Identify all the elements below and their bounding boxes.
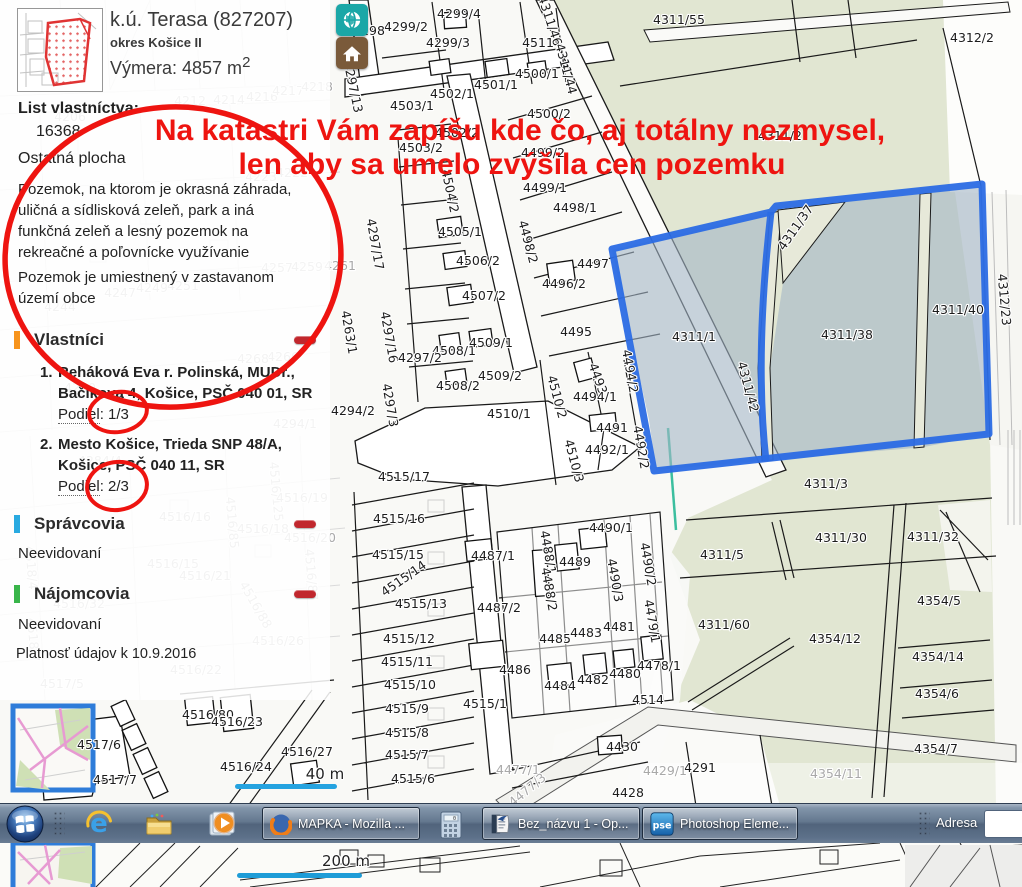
internet-explorer-button[interactable]: e [84,809,114,839]
media-player-icon [208,809,238,839]
tenants-empty: Neevidovaní [18,616,101,633]
taskbar-grip[interactable] [918,811,930,837]
parcel-label: 4489 [559,554,591,569]
folder-icon [144,809,174,839]
parcel-label: 4429/1 [643,763,687,778]
parcel-label: 4487/2 [477,600,521,615]
parcel-label: 4311/40 [932,302,984,317]
owner-name: Mesto Košice, Trieda SNP 48/A, [58,434,320,455]
managers-section-header: Správcovia [0,514,330,536]
taskbar-grip[interactable] [53,811,65,837]
owner-address: Bačíkova 4, Košice, PSČ 040 01, SR [58,383,320,404]
parcel-label: 4299/3 [426,35,470,50]
parcel-location-note: Pozemok je umiestnený v zastavanom území… [18,267,310,309]
parcel-label: 4517/7 [93,772,137,787]
parcel-label: 4506/2 [456,253,500,268]
calculator-icon: 0 [437,811,465,839]
parcel-label: 4430 [606,739,638,754]
parcel-label: 4515/8 [385,725,429,740]
taskbar-window-openoffice[interactable]: Bez_názvu 1 - Op... [482,807,640,840]
parcel-label: 4498/1 [553,200,597,215]
parcel-label: 4515/16 [373,511,425,526]
parcel-label: 4516/23 [211,714,263,729]
parcel-label: 4500/2 [527,106,571,121]
parcel-label: 4503/1 [390,98,434,113]
parcel-label: 4478/1 [637,658,681,673]
address-band-label: Adresa [936,815,977,830]
owner-share: Podiel: 1/3 [58,404,320,425]
home-icon [340,41,364,65]
taskbar-window-photoshop[interactable]: pse Photoshop Eleme... [642,807,798,840]
tenants-accent-bar [14,585,20,603]
parcel-label: 4354/7 [914,741,958,756]
owner-share: Podiel: 2/3 [58,476,320,497]
parcel-label: 4354/12 [809,631,861,646]
parcel-label: 4514 [632,692,664,707]
internet-explorer-icon: e [84,809,114,839]
parcel-label: 4311/30 [815,530,867,545]
parcel-label: 4511 [522,35,554,50]
parcel-label: 4502/2 [435,125,479,140]
parcel-label: 4354/5 [917,593,961,608]
parcel-label: 4354/6 [915,686,959,701]
start-button[interactable] [6,805,44,843]
home-button[interactable] [336,37,368,69]
managers-accent-bar [14,515,20,533]
overview-map-2[interactable] [13,843,93,887]
parcel-label: 4516/24 [220,759,272,774]
collapse-tenants-button[interactable] [294,590,316,598]
parcel-label: 4515/17 [378,469,430,484]
parcel-label: 4510/1 [487,406,531,421]
pse-icon-text: pse [653,820,672,831]
parcel-label: 4515/7 [385,747,429,762]
window-title: Bez_názvu 1 - Op... [518,817,628,831]
parcel-label: 4291 [684,760,716,775]
data-validity: Platnosť údajov k 10.9.2016 [16,646,196,662]
parcel-label: 4482 [577,672,609,687]
tenants-title: Nájomcovia [34,584,129,604]
openoffice-icon [490,812,512,836]
globe-icon [340,8,364,32]
parcel-header: k.ú. Terasa (827207) okres Košice II Vým… [110,8,330,79]
managers-title: Správcovia [34,514,125,534]
parcel-label: 4502/1 [430,86,474,101]
window-title: MAPKA - Mozilla ... [298,817,405,831]
collapse-managers-button[interactable] [294,520,316,528]
parcel-label: 4354/14 [912,649,964,664]
parcel-label: 4497 [577,256,609,271]
parcel-label: 4499/1 [523,180,567,195]
calculator-button[interactable]: 0 [436,810,466,840]
parcel-label: 4509/2 [478,368,522,383]
cadastral-unit-title: k.ú. Terasa (827207) [110,8,330,32]
owner-item: 2. Mesto Košice, Trieda SNP 48/A, Košice… [40,434,320,497]
parcel-label: 4311/2 [758,128,802,143]
parcel-label: 4515/6 [391,771,435,786]
parcel-label: 4354/11 [810,766,862,781]
owners-title: Vlastníci [34,330,104,350]
lv-label: List vlastníctva: [18,100,139,118]
parcel-label: 4507/2 [462,288,506,303]
plot-type: Ostatná plocha [18,150,126,168]
parcel-label: 4297/2 [398,350,442,365]
bottom-map-strip [0,843,1022,887]
parcel-label: 4299/2 [384,19,428,34]
address-input[interactable] [984,810,1022,838]
owners-accent-bar [14,331,20,349]
owner-number: 1. [40,362,53,383]
photoshop-elements-icon: pse [650,812,674,836]
parcel-label: 4311/60 [698,617,750,632]
parcel-label: 4492/1 [585,442,629,457]
parcel-label: 4491 [596,420,628,435]
parcel-label: 4486 [499,662,531,677]
parcel-label: 4515/1 [463,696,507,711]
app-window: 4299/44299/34299/242984297/134311/464511… [0,0,1022,887]
windows-taskbar: e [0,803,1022,843]
info-panel: k.ú. Terasa (827207) okres Košice II Vým… [0,0,330,700]
media-player-button[interactable] [208,809,238,839]
parcel-label: 4312/2 [950,30,994,45]
parcel-label: 4508/2 [436,378,480,393]
svg-text:0: 0 [453,816,456,822]
parcel-label: 4515/9 [385,701,429,716]
parcel-description: Pozemok, na ktorom je okrasná záhrada, u… [18,179,310,263]
parcel-label: 4311/38 [821,327,873,342]
firefox-icon [270,813,292,835]
parcel-label: 4499/2 [521,145,565,160]
owner-address: Košice, PSČ 040 11, SR [58,455,320,476]
owners-section-header: Vlastníci [0,330,330,352]
owner-item: 1. Reháková Eva r. Polinská, MUDr., Bačí… [40,362,320,425]
parcel-label: 4515/13 [395,596,447,611]
district-label: okres Košice II [110,35,330,50]
parcel-label: 4495 [560,324,592,339]
parcel-label: 4509/1 [469,335,513,350]
parcel-label: 4517/6 [77,737,121,752]
parcel-label: 4294/2 [331,403,375,418]
parcel-label: 4490/1 [589,520,633,535]
window-title: Photoshop Eleme... [680,817,789,831]
parcel-label: 4299/4 [437,6,481,21]
parcel-label: 4496/2 [542,276,586,291]
parcel-label: 4311/1 [672,329,716,344]
parcel-label: 4500/1 [515,66,559,81]
lv-number: 16368 [36,123,81,141]
parcel-label: 40 m [306,765,344,783]
parcel-label: 4516/27 [281,744,333,759]
parcel-label: 4484 [544,678,576,693]
parcel-label: 4481 [603,619,635,634]
parcel-label: 4428 [612,785,644,800]
owner-number: 2. [40,434,53,455]
parcel-label: 4515/12 [383,631,435,646]
collapse-owners-button[interactable] [294,336,316,344]
parcel-label: 4505/1 [438,224,482,239]
managers-empty: Neevidovaní [18,545,101,562]
windows-logo-icon [6,805,44,843]
area-label: Výmera: 4857 m2 [110,54,330,79]
parcel-label: 4311/55 [653,12,705,27]
parcel-shape-outline [46,19,90,85]
tenants-section-header: Nájomcovia [0,584,330,606]
parcel-preview-thumbnail [17,8,103,92]
parcel-label: 4311/3 [804,476,848,491]
parcel-label: 4311/5 [700,547,744,562]
owner-name: Reháková Eva r. Polinská, MUDr., [58,362,320,383]
parcel-label: 4515/11 [381,654,433,669]
parcel-label: 4501/1 [474,77,518,92]
parcel-label: 200 m [322,852,370,870]
file-explorer-button[interactable] [144,809,174,839]
parcel-label: 4311/32 [907,529,959,544]
parcel-label: 4515/10 [384,677,436,692]
taskbar-window-firefox[interactable]: MAPKA - Mozilla ... [262,807,420,840]
parcel-label: 4483 [570,625,602,640]
parcel-label: 4485 [539,631,571,646]
parcel-label: 4487/1 [471,548,515,563]
parcel-label: 4494/1 [573,389,617,404]
parcel-label: 4503/2 [399,140,443,155]
globe-button[interactable] [336,4,368,36]
